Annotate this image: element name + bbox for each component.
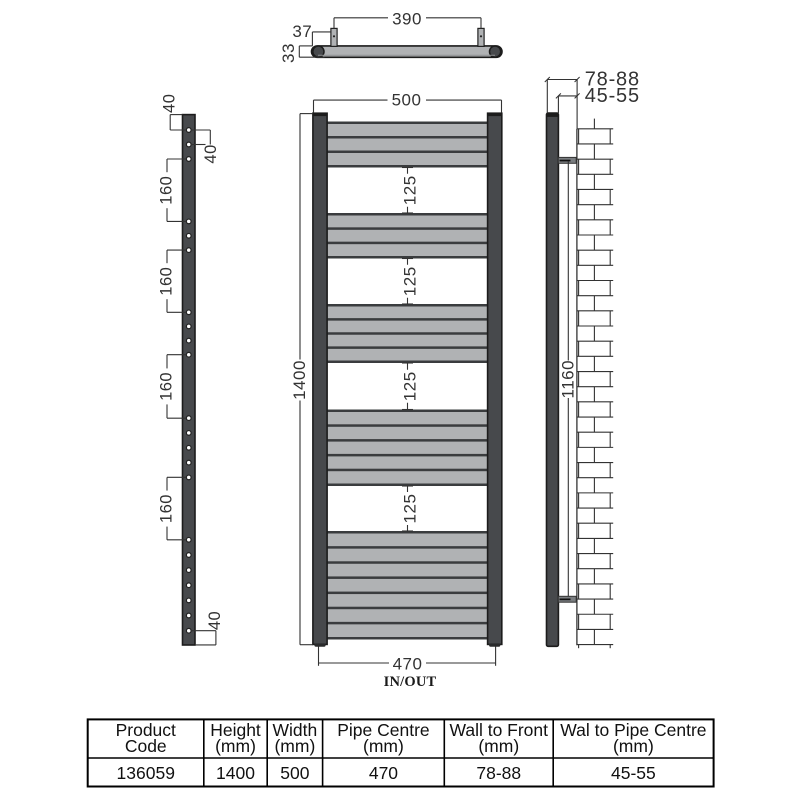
svg-text:125: 125	[400, 175, 419, 205]
svg-text:1400: 1400	[216, 763, 255, 783]
svg-text:45-55: 45-55	[611, 763, 656, 783]
svg-text:125: 125	[400, 266, 419, 296]
svg-text:40: 40	[206, 611, 224, 630]
svg-text:125: 125	[400, 494, 419, 524]
svg-text:1160: 1160	[559, 360, 578, 399]
svg-text:160: 160	[157, 267, 175, 296]
svg-text:136059: 136059	[117, 763, 175, 783]
svg-text:45-55: 45-55	[585, 85, 640, 107]
svg-text:160: 160	[157, 494, 175, 523]
svg-text:470: 470	[369, 763, 398, 783]
svg-text:40: 40	[202, 144, 220, 163]
svg-text:125: 125	[400, 371, 419, 401]
svg-text:390: 390	[392, 10, 422, 29]
svg-text:1400: 1400	[290, 360, 309, 400]
svg-text:(mm): (mm)	[613, 736, 654, 756]
svg-text:470: 470	[393, 655, 423, 674]
svg-text:160: 160	[157, 372, 175, 401]
svg-text:Code: Code	[125, 736, 167, 756]
svg-text:500: 500	[280, 763, 309, 783]
svg-text:37: 37	[292, 22, 312, 41]
svg-text:(mm): (mm)	[363, 736, 404, 756]
svg-text:IN/OUT: IN/OUT	[384, 674, 437, 690]
svg-text:(mm): (mm)	[274, 736, 315, 756]
svg-text:(mm): (mm)	[478, 736, 519, 756]
svg-text:160: 160	[157, 176, 175, 205]
svg-text:(mm): (mm)	[215, 736, 256, 756]
svg-text:78-88: 78-88	[476, 763, 521, 783]
svg-text:33: 33	[279, 43, 298, 63]
svg-text:500: 500	[392, 91, 422, 110]
svg-text:40: 40	[161, 94, 179, 113]
